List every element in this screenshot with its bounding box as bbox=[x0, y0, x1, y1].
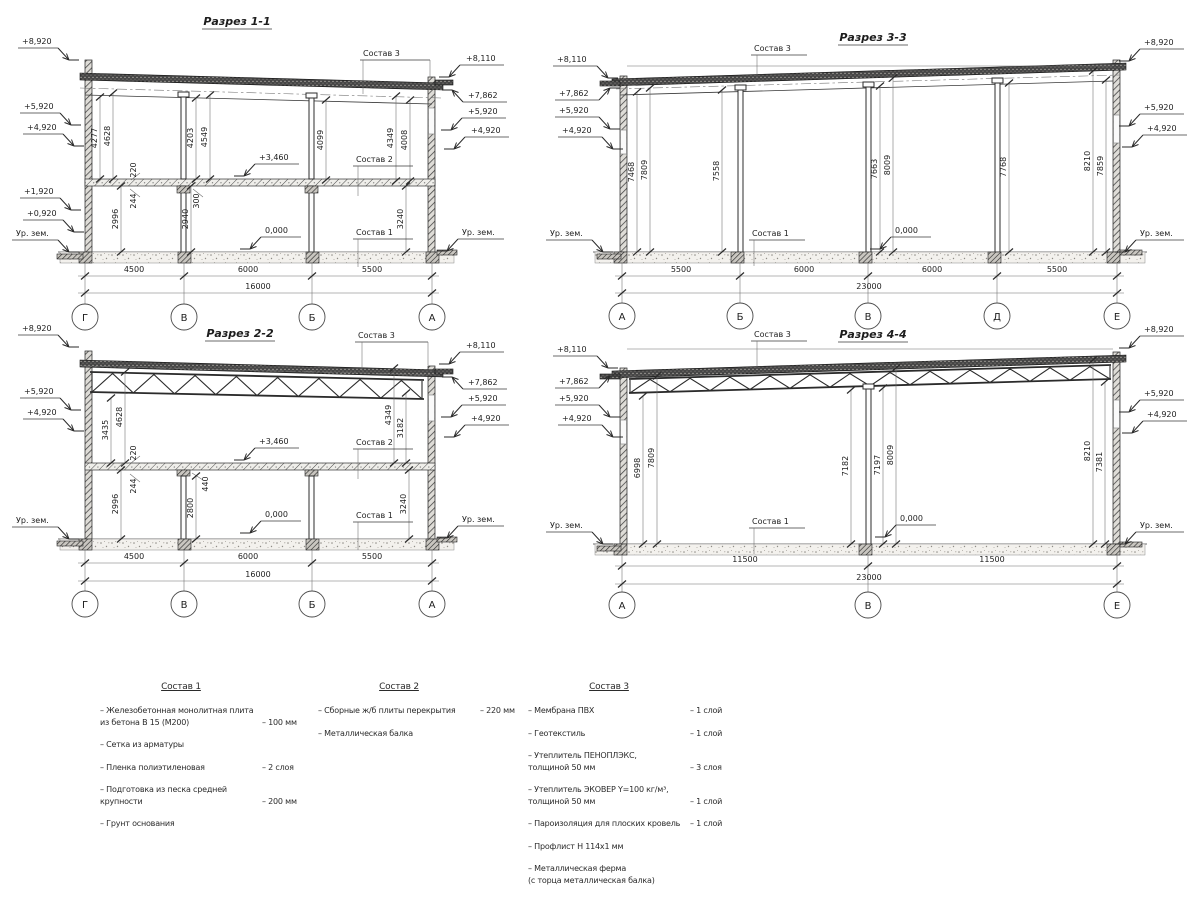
level-label: Ур. зем. bbox=[1140, 521, 1173, 530]
legend-item: – Мембрана ПВХ– 1 слой bbox=[528, 705, 760, 717]
dim-label: 2996 bbox=[111, 494, 120, 514]
callout-label: Состав 3 bbox=[754, 330, 791, 339]
dim-label: 4203 bbox=[186, 128, 195, 148]
window bbox=[429, 395, 435, 421]
callout-label: Состав 2 bbox=[356, 155, 393, 164]
dim-label: 4500 bbox=[124, 552, 144, 561]
dim-label: 3240 bbox=[399, 494, 408, 514]
level-label: +8,920 bbox=[1144, 325, 1174, 334]
inner-levels: 0,000 bbox=[870, 226, 931, 249]
dim-label: 4008 bbox=[400, 130, 409, 150]
level-label: +8,110 bbox=[557, 55, 587, 64]
levels-left: +8,920 +5,920 +4,920 +1,920 +0,920 Ур. з… bbox=[12, 37, 84, 252]
callout-label: Состав 1 bbox=[752, 517, 789, 526]
column bbox=[738, 90, 743, 252]
level-label: +4,920 bbox=[471, 126, 501, 135]
dim-label: 4628 bbox=[103, 126, 112, 146]
inner-levels: +3,460 0,000 bbox=[234, 153, 301, 249]
level-label: Ур. зем. bbox=[550, 521, 583, 530]
level-label: +7,862 bbox=[468, 91, 498, 100]
legend-sostav-2: Состав 2 – Сборные ж/б плиты перекрытия–… bbox=[318, 682, 550, 750]
level-label: +8,920 bbox=[22, 324, 52, 333]
truss-diagonals bbox=[92, 374, 422, 400]
dim-label: 7381 bbox=[1095, 452, 1104, 472]
dim-label: 7182 bbox=[841, 456, 850, 476]
legend-item: – Металлическая ферма(с торца металличес… bbox=[528, 863, 760, 886]
level-label: +4,920 bbox=[471, 414, 501, 423]
level-label: Ур. зем. bbox=[462, 228, 495, 237]
legend-item: – Железобетонная монолитная плитаиз бето… bbox=[100, 705, 332, 728]
footing bbox=[731, 252, 744, 263]
grid-letter: Д bbox=[993, 312, 1001, 323]
dim-label: 5500 bbox=[362, 552, 382, 561]
dim-label: 2800 bbox=[186, 498, 195, 518]
dim-label: 220 bbox=[129, 445, 138, 460]
legend-item: – Сетка из арматуры bbox=[100, 739, 332, 751]
section-title: Разрез 1-1 bbox=[203, 15, 270, 28]
level-label: +3,460 bbox=[259, 437, 289, 446]
grid-letter: В bbox=[181, 313, 188, 324]
dim-label: 8009 bbox=[886, 445, 895, 465]
level-label: +4,920 bbox=[562, 126, 592, 135]
footing bbox=[859, 252, 872, 263]
level-label: +5,920 bbox=[468, 394, 498, 403]
level-label: +5,920 bbox=[24, 102, 54, 111]
legend-item: – Утеплитель ЭКОВЕР Y=100 кг/м³,толщиной… bbox=[528, 784, 760, 807]
dim-label: 6000 bbox=[238, 265, 258, 274]
level-label: +0,920 bbox=[27, 209, 57, 218]
dim-label: 4099 bbox=[316, 130, 325, 150]
dim-label: 7768 bbox=[999, 157, 1008, 177]
right-wall bbox=[1113, 60, 1120, 252]
section-title: Разрез 4-4 bbox=[839, 328, 906, 341]
dim-label: 16000 bbox=[245, 570, 270, 579]
footing bbox=[1107, 544, 1120, 555]
level-label: +8,110 bbox=[466, 54, 496, 63]
callout-label: Состав 2 bbox=[356, 438, 393, 447]
level-label: Ур. зем. bbox=[16, 229, 49, 238]
legend-sostav-1: Состав 1 – Железобетонная монолитная пли… bbox=[100, 682, 332, 841]
footing bbox=[1107, 252, 1120, 263]
dim-label: 3182 bbox=[396, 418, 405, 438]
inner-levels: +3,460 0,000 bbox=[234, 437, 301, 533]
window bbox=[1114, 115, 1120, 143]
callout-label: Состав 3 bbox=[754, 44, 791, 53]
callout-label: Состав 1 bbox=[752, 229, 789, 238]
grid-letter: Г bbox=[82, 313, 88, 324]
grid-letter: В bbox=[181, 600, 188, 611]
grid-letter: Б bbox=[737, 312, 744, 323]
dim-label: 440 bbox=[201, 476, 210, 491]
beam bbox=[305, 470, 318, 476]
dim-label: 16000 bbox=[245, 282, 270, 291]
level-label: +5,920 bbox=[24, 387, 54, 396]
dim-label: 7809 bbox=[640, 160, 649, 180]
legend-title: Состав 1 bbox=[100, 682, 262, 692]
left-wall bbox=[85, 60, 92, 252]
sections-drawing: Разрез 1-1 4277 4628 4203 4549 4099 4349 bbox=[0, 0, 1200, 660]
footing bbox=[306, 252, 319, 263]
callout-label: Состав 1 bbox=[356, 228, 393, 237]
dim-label: 5500 bbox=[671, 265, 691, 274]
level-label: +5,920 bbox=[1144, 103, 1174, 112]
dim-label: 3435 bbox=[101, 420, 110, 440]
window bbox=[621, 130, 627, 154]
beam bbox=[305, 186, 318, 193]
roof-band bbox=[80, 360, 443, 377]
section-3-3: Разрез 3-3 7468 7809 7558 7663 8009 7768… bbox=[546, 31, 1187, 329]
left-wall bbox=[620, 368, 627, 544]
level-label: +8,920 bbox=[22, 37, 52, 46]
right-wall bbox=[428, 366, 435, 539]
dim-label: 11500 bbox=[979, 555, 1004, 564]
canopy-stub bbox=[435, 369, 453, 374]
dim-label: 4549 bbox=[200, 127, 209, 147]
callout-label: Состав 3 bbox=[363, 49, 400, 58]
footing bbox=[178, 539, 191, 550]
dim-label: 6000 bbox=[794, 265, 814, 274]
grid-letter: В bbox=[865, 312, 872, 323]
legend-item: – Геотекстиль– 1 слой bbox=[528, 728, 760, 740]
section-2-2: Разрез 2-2 3435 4628 220 244 2996 440 28… bbox=[12, 324, 509, 617]
dim-label: 5500 bbox=[362, 265, 382, 274]
dim-label: 23000 bbox=[856, 573, 881, 582]
legend-item: – Профлист Н 114х1 мм bbox=[528, 841, 760, 853]
dim-label: 4500 bbox=[124, 265, 144, 274]
beam bbox=[177, 470, 190, 476]
level-label: Ур. зем. bbox=[550, 229, 583, 238]
level-label: +4,920 bbox=[1147, 410, 1177, 419]
level-label: +4,920 bbox=[27, 123, 57, 132]
dim-label: 7859 bbox=[1096, 156, 1105, 176]
section-title: Разрез 2-2 bbox=[206, 327, 274, 340]
dim-label: 4349 bbox=[386, 128, 395, 148]
legend-item: – Подготовка из песка среднейкрупности– … bbox=[100, 784, 332, 807]
legend-item: – Пленка полиэтиленовая– 2 слоя bbox=[100, 762, 332, 774]
dim-label: 220 bbox=[129, 162, 138, 177]
legend-title: Состав 2 bbox=[318, 682, 480, 692]
legend-sostav-3: Состав 3 – Мембрана ПВХ– 1 слой – Геотек… bbox=[528, 682, 760, 897]
level-label: +3,460 bbox=[259, 153, 289, 162]
bottom-dimensions: 4500 6000 5500 16000 Г В Б А bbox=[72, 550, 445, 617]
dim-label: 23000 bbox=[856, 282, 881, 291]
grid-letter: Г bbox=[82, 600, 88, 611]
inner-levels: 0,000 bbox=[875, 514, 936, 537]
column bbox=[866, 389, 871, 544]
legend-item: – Утеплитель ПЕНОПЛЭКС,толщиной 50 мм– 3… bbox=[528, 750, 760, 773]
level-label: +1,920 bbox=[24, 187, 54, 196]
level-label: +7,862 bbox=[468, 378, 498, 387]
dim-label: 2996 bbox=[111, 209, 120, 229]
level-label: 0,000 bbox=[900, 514, 923, 523]
dim-label: 300 bbox=[192, 193, 201, 208]
dim-label: 8210 bbox=[1083, 441, 1092, 461]
level-label: +7,862 bbox=[559, 89, 589, 98]
left-wall bbox=[85, 351, 92, 539]
level-label: 0,000 bbox=[895, 226, 918, 235]
legend-title: Состав 3 bbox=[528, 682, 690, 692]
callout-label: Состав 1 bbox=[356, 511, 393, 520]
level-label: +8,110 bbox=[557, 345, 587, 354]
roof-band bbox=[80, 73, 443, 90]
canopy-stub bbox=[435, 80, 453, 85]
dim-label: 7809 bbox=[647, 448, 656, 468]
left-wall bbox=[620, 76, 627, 252]
window bbox=[621, 420, 627, 444]
dim-label: 8009 bbox=[883, 155, 892, 175]
level-label: Ур. зем. bbox=[462, 515, 495, 524]
grid-letter: А bbox=[429, 313, 436, 324]
grid-letter: Е bbox=[1114, 312, 1120, 323]
floor-slab bbox=[85, 179, 435, 186]
callout-label: Состав 3 bbox=[358, 331, 395, 340]
dim-label: 7663 bbox=[870, 159, 879, 179]
grid-letter: Е bbox=[1114, 601, 1120, 612]
dim-label: 8210 bbox=[1083, 151, 1092, 171]
dim-label: 7197 bbox=[873, 455, 882, 475]
legend-item: – Металлическая балка bbox=[318, 728, 550, 740]
callouts: Состав 3 Состав 2 Состав 1 bbox=[353, 331, 428, 550]
grid-letter: А bbox=[619, 312, 626, 323]
footing bbox=[988, 252, 1001, 263]
dim-label: 4628 bbox=[115, 407, 124, 427]
right-wall bbox=[1113, 352, 1120, 544]
dim-label: 7468 bbox=[627, 162, 636, 182]
column bbox=[309, 476, 314, 539]
level-label: 0,000 bbox=[265, 510, 288, 519]
level-label: +5,920 bbox=[559, 106, 589, 115]
level-label: 0,000 bbox=[265, 226, 288, 235]
level-label: +5,920 bbox=[559, 394, 589, 403]
level-label: +4,920 bbox=[1147, 124, 1177, 133]
building-geometry bbox=[593, 352, 1147, 555]
footing bbox=[859, 544, 872, 555]
floor-slab bbox=[85, 463, 435, 470]
dim-label: 5500 bbox=[1047, 265, 1067, 274]
level-label: +5,920 bbox=[1144, 389, 1174, 398]
dim-label: 244 bbox=[129, 193, 138, 208]
canopy-stub bbox=[600, 81, 620, 86]
dim-label: 4277 bbox=[90, 128, 99, 148]
dim-label: 6000 bbox=[922, 265, 942, 274]
grid-letter: А bbox=[429, 600, 436, 611]
level-label: +7,862 bbox=[559, 377, 589, 386]
legend-item: – Пароизоляция для плоских кровель– 1 сл… bbox=[528, 818, 760, 830]
column bbox=[309, 98, 314, 179]
section-title: Разрез 3-3 bbox=[839, 31, 907, 44]
dim-label: 6000 bbox=[238, 552, 258, 561]
dim-label: 2940 bbox=[181, 209, 190, 229]
dim-label: 244 bbox=[129, 478, 138, 493]
levels-left: +8,920 +5,920 +4,920 Ур. зем. bbox=[12, 324, 84, 539]
window bbox=[429, 108, 435, 134]
level-label: +4,920 bbox=[562, 414, 592, 423]
legend-item: – Сборные ж/б плиты перекрытия– 220 мм bbox=[318, 705, 550, 717]
level-label: +8,110 bbox=[466, 341, 496, 350]
dim-label: 3240 bbox=[396, 209, 405, 229]
window bbox=[1114, 400, 1120, 428]
bottom-dimensions: 4500 6000 5500 16000 Г В Б А bbox=[72, 263, 445, 330]
composition-legend: Состав 1 – Железобетонная монолитная пли… bbox=[0, 660, 1200, 900]
level-label: Ур. зем. bbox=[1140, 229, 1173, 238]
column bbox=[309, 186, 314, 252]
level-label: +5,920 bbox=[468, 107, 498, 116]
building-geometry bbox=[57, 60, 457, 263]
bottom-dimensions: 11500 11500 23000 А В Е bbox=[609, 555, 1130, 618]
dim-label: 4349 bbox=[384, 405, 393, 425]
grid-letter: Б bbox=[309, 600, 316, 611]
bottom-dimensions: 5500 6000 6000 5500 23000 А Б В Д Е bbox=[609, 263, 1130, 329]
dim-label: 7558 bbox=[712, 161, 721, 181]
grid-letter: А bbox=[619, 601, 626, 612]
level-label: +4,920 bbox=[27, 408, 57, 417]
section-1-1: Разрез 1-1 4277 4628 4203 4549 4099 4349 bbox=[12, 15, 509, 330]
dim-label: 11500 bbox=[732, 555, 757, 564]
section-4-4: Разрез 4-4 6998 7809 7182 7197 8009 8210… bbox=[546, 325, 1187, 618]
grid-letter: Б bbox=[309, 313, 316, 324]
right-wall bbox=[428, 77, 435, 252]
dim-label: 6998 bbox=[633, 458, 642, 478]
grid-letter: В bbox=[865, 601, 872, 612]
building-geometry bbox=[57, 351, 457, 550]
footing bbox=[306, 539, 319, 550]
level-label: Ур. зем. bbox=[16, 516, 49, 525]
beam bbox=[177, 186, 190, 193]
level-label: +8,920 bbox=[1144, 38, 1174, 47]
legend-item: – Грунт основания bbox=[100, 818, 332, 830]
